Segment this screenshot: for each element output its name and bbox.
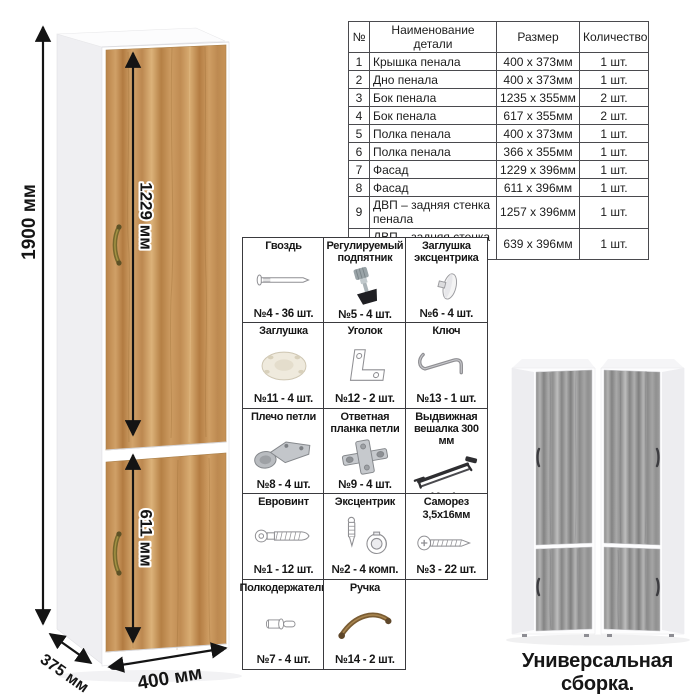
table-row: 4Бок пенала617 х 355мм2 шт. xyxy=(349,107,649,125)
adjustable-foot-icon xyxy=(330,265,400,309)
hardware-item-qty: №7 - 4 шт. xyxy=(257,654,310,666)
table-cell: 1 xyxy=(349,53,370,71)
hardware-item-qty: №1 - 12 шт. xyxy=(254,564,314,576)
hardware-row: Заглушка№11 - 4 шт.Уголок№12 - 2 шт.Ключ… xyxy=(242,322,488,409)
hardware-item-name: Ключ xyxy=(432,325,460,337)
table-cell: 8 xyxy=(349,179,370,197)
hardware-item-qty: №6 - 4 шт. xyxy=(420,308,473,320)
table-cell: 1 шт. xyxy=(580,228,649,259)
hardware-row: Евровинт№1 - 12 шт.Эксцентрик№2 - 4 комп… xyxy=(242,493,488,580)
table-row: 1Крышка пенала400 х 373мм1 шт. xyxy=(349,53,649,71)
table-cell: 6 xyxy=(349,143,370,161)
table-cell: Бок пенала xyxy=(370,89,497,107)
table-cell: Крышка пенала xyxy=(370,53,497,71)
hex-key-icon xyxy=(411,345,481,387)
hardware-item-qty: №2 - 4 комп. xyxy=(332,564,399,576)
table-cell: 4 xyxy=(349,107,370,125)
hardware-item-name: Заглушка xyxy=(259,325,308,337)
hardware-item-qty: №4 - 36 шт. xyxy=(254,308,314,320)
table-cell: Полка пенала xyxy=(370,125,497,143)
column-header: Размер xyxy=(497,22,580,53)
hardware-item-qty: №9 - 4 шт. xyxy=(338,479,391,491)
table-cell: 5 xyxy=(349,125,370,143)
table-cell: 2 шт. xyxy=(580,107,649,125)
hardware-item-name: Саморез 3,5х16мм xyxy=(407,496,486,521)
hardware-item: Выдвижная вешалка 300 мм№10 - 1 шт. xyxy=(405,408,488,495)
hardware-item: Евровинт№1 - 12 шт. xyxy=(242,493,325,580)
column-header: Наименование детали xyxy=(370,22,497,53)
hardware-item-name: Ручка xyxy=(350,582,380,594)
parts-table: №Наименование деталиРазмерКоличество 1Кр… xyxy=(348,21,649,260)
cabinet-illustration: 1900 мм 1229 мм 611 мм 375 мм 400 мм xyxy=(0,0,250,700)
cam-cap-icon xyxy=(411,265,481,307)
hardware-row: Гвоздь№4 - 36 шт.Регулируемый подпятник№… xyxy=(242,237,488,324)
hardware-item: Ключ№13 - 1 шт. xyxy=(405,322,488,409)
hardware-grid: Гвоздь№4 - 36 шт.Регулируемый подпятник№… xyxy=(242,237,488,670)
table-cell: 1 шт. xyxy=(580,125,649,143)
bottom-door xyxy=(106,453,226,652)
table-cell: 1 шт. xyxy=(580,71,649,89)
self-tapping-screw-icon xyxy=(411,523,481,563)
hardware-item-name: Уголок xyxy=(348,325,383,337)
table-cell: 2 шт. xyxy=(580,89,649,107)
hardware-item-name: Выдвижная вешалка 300 мм xyxy=(407,411,486,448)
table-cell: 366 х 355мм xyxy=(497,143,580,161)
table-cell: 1 шт. xyxy=(580,53,649,71)
hardware-item-name: Эксцентрик xyxy=(335,496,395,508)
hardware-item-qty: №14 - 2 шт. xyxy=(335,654,395,666)
hardware-item-qty: №5 - 4 шт. xyxy=(338,309,391,321)
table-cell: Полка пенала xyxy=(370,143,497,161)
hinge-arm-icon xyxy=(249,429,319,473)
table-cell: Фасад xyxy=(370,161,497,179)
corner-bracket-icon xyxy=(330,345,400,387)
hardware-item: Саморез 3,5х16мм№3 - 22 шт. xyxy=(405,493,488,580)
hardware-item: Гвоздь№4 - 36 шт. xyxy=(242,237,325,324)
hardware-item-qty: №8 - 4 шт. xyxy=(257,479,310,491)
hardware-item-name: Заглушка эксцентрика xyxy=(407,240,486,265)
table-cell: 400 х 373мм xyxy=(497,71,580,89)
table-cell: 1 шт. xyxy=(580,161,649,179)
table-cell: 639 х 396мм xyxy=(497,228,580,259)
hardware-item-name: Евровинт xyxy=(258,496,309,508)
parts-table-header-row: №Наименование деталиРазмерКоличество xyxy=(349,22,649,53)
table-row: 2Дно пенала400 х 373мм1 шт. xyxy=(349,71,649,89)
shelf-pin-icon xyxy=(249,606,319,642)
hardware-item: Уголок№12 - 2 шт. xyxy=(323,322,406,409)
table-cell: 1229 х 396мм xyxy=(497,161,580,179)
handle-icon xyxy=(330,602,400,646)
width-dimension-label: 400 мм xyxy=(136,663,204,694)
nail-icon xyxy=(249,260,319,300)
table-row: 8Фасад611 х 396мм1 шт. xyxy=(349,179,649,197)
table-row: 6Полка пенала366 х 355мм1 шт. xyxy=(349,143,649,161)
pullout-hanger-icon xyxy=(411,448,481,492)
hardware-item-name: Ответная планка петли xyxy=(325,411,404,436)
universal-assembly-caption: Универсальная сборка. xyxy=(485,650,700,696)
mirrored-cabinets-illustration xyxy=(498,353,698,648)
right-gray-cabinet xyxy=(601,359,684,637)
table-cell: 1 шт. xyxy=(580,179,649,197)
table-cell: 3 xyxy=(349,89,370,107)
floor-shadow xyxy=(506,635,690,646)
table-cell: 2 xyxy=(349,71,370,89)
hardware-item: Ответная планка петли№9 - 4 шт. xyxy=(323,408,406,495)
hardware-item-qty: №3 - 22 шт. xyxy=(417,564,477,576)
table-row: 3Бок пенала1235 х 355мм2 шт. xyxy=(349,89,649,107)
hardware-item-name: Регулируемый подпятник xyxy=(325,240,404,265)
table-row: 5Полка пенала400 х 373мм1 шт. xyxy=(349,125,649,143)
height-dimension-label: 1900 мм xyxy=(19,184,40,260)
table-cell: 1257 х 396мм xyxy=(497,197,580,228)
hardware-item: Эксцентрик№2 - 4 комп. xyxy=(323,493,406,580)
table-row: 7Фасад1229 х 396мм1 шт. xyxy=(349,161,649,179)
hardware-item: Плечо петли№8 - 4 шт. xyxy=(242,408,325,495)
table-cell: Бок пенала xyxy=(370,107,497,125)
euro-screw-icon xyxy=(249,516,319,556)
column-header: № xyxy=(349,22,370,53)
hardware-item-name: Гвоздь xyxy=(265,240,302,252)
hardware-item-qty: №12 - 2 шт. xyxy=(335,393,395,405)
top-door xyxy=(106,45,226,450)
table-cell: 1 шт. xyxy=(580,197,649,228)
table-cell: 1 шт. xyxy=(580,143,649,161)
hardware-row: Полкодержатель№7 - 4 шт.Ручка№14 - 2 шт. xyxy=(242,579,488,670)
table-cell: 400 х 373мм xyxy=(497,125,580,143)
hardware-item-name: Полкодержатель xyxy=(239,582,327,594)
plug-icon xyxy=(249,345,319,387)
hardware-item: Ручка№14 - 2 шт. xyxy=(323,579,406,670)
cam-lock-icon xyxy=(330,514,400,558)
table-cell: Дно пенала xyxy=(370,71,497,89)
table-row: 9ДВП – задняя стенка пенала1257 х 396мм1… xyxy=(349,197,649,228)
table-cell: 611 х 396мм xyxy=(497,179,580,197)
table-cell: ДВП – задняя стенка пенала xyxy=(370,197,497,228)
hardware-item: Регулируемый подпятник№5 - 4 шт. xyxy=(323,237,406,324)
table-cell: 9 xyxy=(349,197,370,228)
hinge-plate-icon xyxy=(330,435,400,479)
table-cell: 617 х 355мм xyxy=(497,107,580,125)
table-cell: 400 х 373мм xyxy=(497,53,580,71)
table-cell: Фасад xyxy=(370,179,497,197)
table-cell: 7 xyxy=(349,161,370,179)
hardware-item: Полкодержатель№7 - 4 шт. xyxy=(242,579,325,670)
top-door-dimension-label: 1229 мм xyxy=(137,182,156,250)
table-cell: 1235 х 355мм xyxy=(497,89,580,107)
assembly-sheet: 1900 мм 1229 мм 611 мм 375 мм 400 мм №На… xyxy=(0,0,700,700)
hardware-item-qty: №13 - 1 шт. xyxy=(417,393,477,405)
hardware-item: Заглушка№11 - 4 шт. xyxy=(242,322,325,409)
hardware-item: Заглушка эксцентрика№6 - 4 шт. xyxy=(405,237,488,324)
hardware-item-name: Плечо петли xyxy=(251,411,316,423)
hardware-row: Плечо петли№8 - 4 шт.Ответная планка пет… xyxy=(242,408,488,495)
parts-table-body: 1Крышка пенала400 х 373мм1 шт.2Дно пенал… xyxy=(349,53,649,260)
column-header: Количество xyxy=(580,22,649,53)
left-gray-cabinet xyxy=(512,359,595,637)
bottom-door-dimension-label: 611 мм xyxy=(137,509,156,566)
hardware-item-qty: №11 - 4 шт. xyxy=(254,393,313,405)
